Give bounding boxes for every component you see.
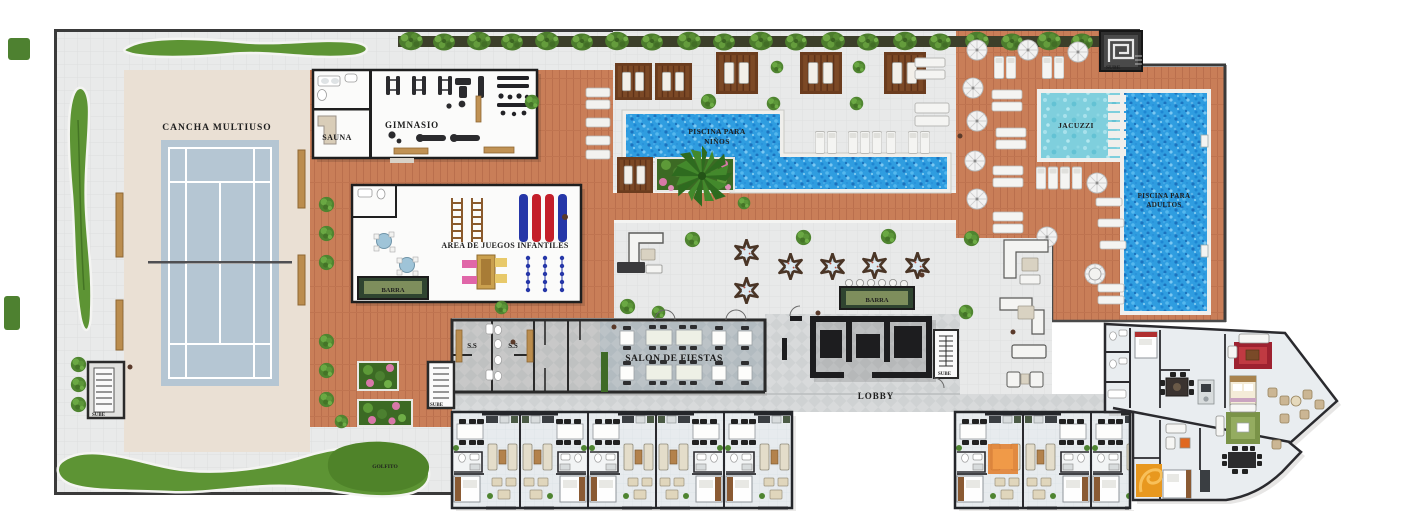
svg-text:JACUZZI: JACUZZI bbox=[1058, 121, 1094, 130]
svg-text:S.S: S.S bbox=[467, 342, 477, 350]
svg-text:PISCINA PARA: PISCINA PARA bbox=[1138, 192, 1191, 200]
svg-text:SUBE: SUBE bbox=[430, 403, 444, 408]
svg-text:ADULTOS: ADULTOS bbox=[1146, 201, 1181, 209]
svg-text:CANCHA MULTIUSO: CANCHA MULTIUSO bbox=[162, 123, 271, 133]
svg-text:BARRA: BARRA bbox=[381, 287, 404, 294]
svg-text:SUBE: SUBE bbox=[92, 413, 106, 418]
svg-text:SUBE: SUBE bbox=[1106, 65, 1121, 71]
svg-text:GOLFITO: GOLFITO bbox=[372, 464, 398, 470]
svg-text:GIMNASIO: GIMNASIO bbox=[385, 120, 439, 130]
svg-text:SALON DE FIESTAS: SALON DE FIESTAS bbox=[625, 354, 723, 364]
svg-text:SUBE: SUBE bbox=[938, 372, 952, 377]
svg-text:NIÑOS: NIÑOS bbox=[704, 137, 730, 146]
svg-text:AREA DE JUEGOS INFANTILES: AREA DE JUEGOS INFANTILES bbox=[441, 241, 568, 250]
svg-text:SAUNA: SAUNA bbox=[322, 133, 352, 142]
svg-text:LOBBY: LOBBY bbox=[858, 391, 895, 401]
svg-text:BARRA: BARRA bbox=[865, 297, 888, 304]
svg-text:PISCINA PARA: PISCINA PARA bbox=[688, 127, 746, 136]
